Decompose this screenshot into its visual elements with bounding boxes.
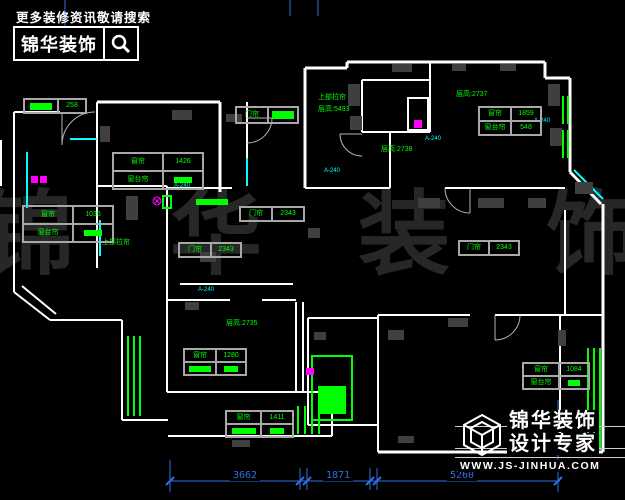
curtain-block bbox=[232, 428, 256, 434]
curtain-table-left-room: 窗帘 1035 窗台帘 bbox=[22, 205, 114, 243]
beam-label-a240-2: A-240 bbox=[198, 287, 214, 294]
door-curtain-label: 门帘 bbox=[459, 241, 489, 255]
door-curtain-box-1: 门帘 2343 bbox=[239, 206, 305, 222]
curtain-table-bottom-right-room: 窗帘 1084 窗台帘 bbox=[522, 362, 590, 390]
curtain-block bbox=[84, 230, 102, 236]
beam-label-a240-4: A-240 bbox=[425, 136, 441, 143]
curtain-label: 窗帘 bbox=[113, 153, 163, 171]
sill-curtain-block-cell bbox=[163, 171, 203, 189]
sill-curtain-value: 548 bbox=[511, 121, 541, 135]
marker-box-258: 258 bbox=[23, 98, 87, 114]
note-ceiling-5493: 层高:5493 bbox=[318, 106, 350, 114]
door-arcs bbox=[62, 112, 520, 340]
curtain-block bbox=[270, 428, 284, 434]
curtain-block bbox=[30, 103, 52, 110]
curtain-block-cell bbox=[226, 424, 261, 437]
door-curtain-label: 门帘 bbox=[179, 243, 211, 257]
curtain-value: 1859 bbox=[511, 107, 541, 121]
sill-curtain-label: 窗台帘 bbox=[479, 121, 511, 135]
curtain-value: 1084 bbox=[559, 363, 589, 376]
door-curtain-value: 2343 bbox=[272, 207, 304, 221]
note-upper-curtain: 上部拉帘 bbox=[318, 94, 346, 102]
dim-1871: 1871 bbox=[323, 470, 353, 481]
door-curtain-box-3: 门帘 2343 bbox=[458, 240, 520, 256]
curtain-block bbox=[272, 111, 294, 119]
floorplan-canvas: 锦华装饰 bbox=[0, 0, 625, 500]
curtain-value: 1426 bbox=[163, 153, 203, 171]
curtain-value: 1411 bbox=[261, 411, 293, 424]
footer-logo: 锦华装饰 设计专家 WWW.JS-JINHUA.COM bbox=[455, 410, 625, 478]
cube-icon bbox=[459, 412, 505, 463]
curtain-block bbox=[224, 366, 238, 372]
sill-curtain-block-cell bbox=[73, 224, 113, 242]
door-curtain-label: 门帘 bbox=[240, 207, 272, 221]
curtain-block bbox=[174, 177, 192, 183]
curtain-block-cell bbox=[261, 424, 293, 437]
curtain-block bbox=[189, 366, 211, 372]
footer-website-text: WWW.JS-JINHUA.COM bbox=[458, 460, 602, 472]
door-curtain-value: 2343 bbox=[489, 241, 519, 255]
curtain-label: 窗帘 bbox=[226, 411, 261, 424]
curtain-table-top-left-room: 窗帘 1426 窗台帘 bbox=[112, 152, 204, 190]
note-ceiling-2735: 层高:2735 bbox=[226, 320, 258, 328]
door-curtain-block-cell bbox=[268, 107, 298, 123]
beam-label-a240-3: A-240 bbox=[324, 168, 340, 175]
curtain-block bbox=[568, 380, 580, 386]
dim-3662: 3662 bbox=[230, 470, 260, 481]
door-curtain-value: 2343 bbox=[211, 243, 241, 257]
marker-value: 258 bbox=[58, 99, 86, 113]
curtain-label: 窗帘 bbox=[479, 107, 511, 121]
sill-curtain-block-cell bbox=[559, 376, 589, 389]
footer-subtitle-text: 设计专家 bbox=[507, 433, 599, 455]
curtain-label: 窗帘 bbox=[23, 206, 73, 224]
note-ceiling-2737: 层高:2737 bbox=[456, 91, 488, 99]
door-curtain-label: 门帘 bbox=[236, 107, 268, 123]
curtain-value: 1280 bbox=[216, 349, 246, 362]
curtain-label: 窗帘 bbox=[523, 363, 559, 376]
logo-tagline: 更多装修资讯敬请搜索 bbox=[16, 7, 151, 26]
search-icon bbox=[103, 28, 137, 59]
sill-curtain-label: 窗台帘 bbox=[113, 171, 163, 189]
magenta-circle-marker bbox=[153, 197, 161, 205]
sill-curtain-label: 窗台帘 bbox=[23, 224, 73, 242]
sill-curtain-label: 窗台帘 bbox=[523, 376, 559, 389]
curtain-label: 窗帘 bbox=[184, 349, 216, 362]
door-curtain-box-4: 门帘 bbox=[235, 106, 299, 124]
curtain-table-top-right-room: 窗帘 1859 窗台帘 548 bbox=[478, 106, 542, 136]
footer-brand-text: 锦华装饰 bbox=[507, 410, 599, 432]
logo-brand-text: 锦华装饰 bbox=[15, 28, 103, 59]
curtain-fill-bars bbox=[196, 199, 346, 414]
door-curtain-box-2: 门帘 2343 bbox=[178, 242, 242, 258]
curtain-block-cell bbox=[216, 362, 246, 375]
note-ceiling-2738: 层高:2738 bbox=[381, 146, 413, 154]
curtain-block-cell bbox=[184, 362, 216, 375]
logo-box: 锦华装饰 bbox=[13, 26, 139, 61]
curtain-table-bottom-balcony: 窗帘 1411 bbox=[225, 410, 294, 438]
curtain-bars bbox=[128, 96, 600, 450]
marker-block-cell bbox=[24, 99, 58, 113]
curtain-table-bottom-left-room: 窗帘 1280 bbox=[183, 348, 247, 376]
curtain-value: 1035 bbox=[73, 206, 113, 224]
